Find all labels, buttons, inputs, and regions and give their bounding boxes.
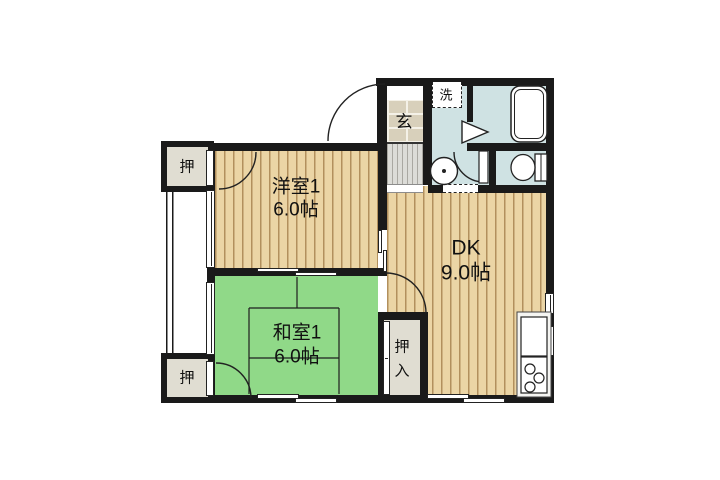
oshiire-label-char2: 入	[394, 364, 409, 379]
hall-dk-step	[387, 184, 423, 193]
closet-top-door	[206, 150, 214, 186]
window-dk-bottom-b	[463, 398, 505, 403]
entrance-step	[387, 86, 423, 100]
oshiire-door	[383, 321, 390, 395]
sliding-door-rooms-b	[295, 272, 337, 276]
window-japanese-room-bottom-b	[295, 398, 337, 403]
wall-bathroom-bottom	[467, 143, 554, 151]
western-room-size: 6.0帖	[273, 201, 318, 220]
window-japanese-room-bottom-a	[257, 394, 299, 399]
wall-bathroom-west	[467, 86, 473, 122]
balcony	[166, 190, 207, 355]
sliding-door-western-dk-b	[383, 250, 387, 272]
floorplan-canvas: 洋室1 6.0帖 DK 9.0帖 和室1 6.0帖 玄 洗 押 押 押 入	[0, 0, 720, 480]
window-dk-right-upper	[545, 293, 554, 314]
entrance-label: 玄	[396, 114, 413, 131]
western-room-label: 洋室1	[272, 178, 321, 197]
oshiire-label-char1: 押	[394, 340, 409, 355]
washroom-open-passage	[443, 184, 478, 193]
window-kitchen-right	[545, 326, 554, 356]
wall-toilet-west	[489, 151, 496, 185]
japanese-room-size: 6.0帖	[274, 348, 319, 367]
entrance-tile-edge	[387, 142, 423, 144]
toilet-room-floor	[496, 151, 546, 185]
closet-bottom-label: 押	[179, 371, 194, 386]
sliding-door-rooms-a	[257, 268, 299, 272]
closet-top-label: 押	[179, 160, 194, 175]
bathroom-floor	[473, 86, 546, 143]
hallway-floor	[387, 143, 423, 188]
closet-bottom-door	[206, 361, 214, 396]
washer-label: 洗	[439, 89, 452, 102]
japanese-room-label: 和室1	[273, 324, 322, 343]
wall-top	[376, 78, 554, 86]
wall-entrance-east	[423, 86, 432, 185]
wall-western-room-east	[378, 151, 387, 230]
sliding-door-western-dk-a	[378, 230, 382, 253]
window-western-room-left	[206, 190, 215, 268]
dk-size: 9.0帖	[441, 263, 491, 284]
window-japanese-room-left	[206, 282, 215, 355]
wall-oshiire-east	[420, 312, 428, 398]
dk-label: DK	[451, 238, 480, 259]
wall-entrance-west	[377, 86, 387, 143]
